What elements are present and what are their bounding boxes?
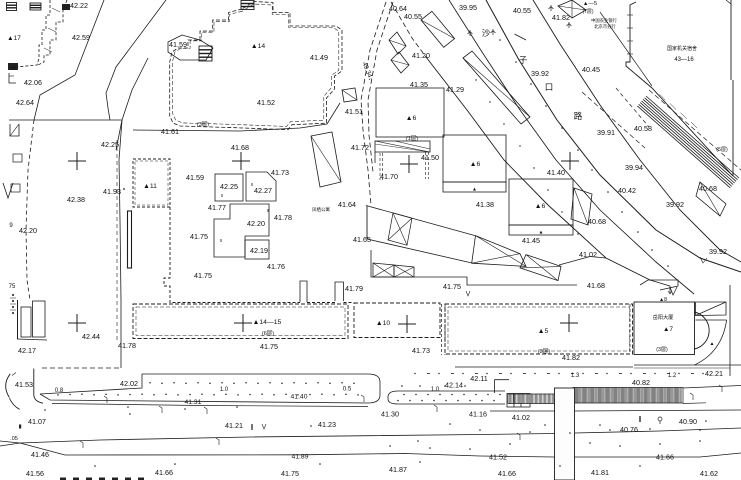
svg-text:41.50: 41.50 xyxy=(421,153,439,162)
svg-text:▲6: ▲6 xyxy=(470,161,481,168)
svg-text:▲14—15: ▲14—15 xyxy=(253,319,282,326)
svg-text:41.79: 41.79 xyxy=(345,284,363,293)
svg-text:41.75: 41.75 xyxy=(281,469,299,478)
svg-text:41.75: 41.75 xyxy=(194,271,212,280)
svg-text:41.59: 41.59 xyxy=(169,40,187,49)
svg-text:▲6: ▲6 xyxy=(535,203,546,210)
svg-text:41.68: 41.68 xyxy=(587,281,605,290)
svg-text:39.94: 39.94 xyxy=(625,163,643,172)
svg-text:▲6: ▲6 xyxy=(406,115,417,122)
svg-text:41.73: 41.73 xyxy=(271,168,289,177)
svg-text:42.17: 42.17 xyxy=(18,346,36,355)
svg-text:0.8: 0.8 xyxy=(55,388,64,394)
svg-text:0.5: 0.5 xyxy=(343,387,352,393)
svg-text:42.25: 42.25 xyxy=(220,182,238,191)
svg-text:41.72: 41.72 xyxy=(351,143,369,152)
svg-text:41.93: 41.93 xyxy=(103,187,121,196)
svg-text:▲7: ▲7 xyxy=(663,326,673,333)
svg-text:Ⅱ: Ⅱ xyxy=(220,238,222,243)
svg-text:41.75: 41.75 xyxy=(190,232,208,241)
svg-text:沙: 沙 xyxy=(482,28,491,38)
svg-text:42.44: 42.44 xyxy=(82,332,100,341)
svg-text:40.58: 40.58 xyxy=(634,124,652,133)
svg-text:41.78: 41.78 xyxy=(118,341,136,350)
svg-text:(3层): (3层) xyxy=(656,346,668,353)
svg-text:39.91: 39.91 xyxy=(597,128,615,137)
svg-text:42.14: 42.14 xyxy=(445,381,463,390)
svg-text:42.20: 42.20 xyxy=(19,226,37,235)
svg-text:41.81: 41.81 xyxy=(591,468,609,477)
svg-text:41.87: 41.87 xyxy=(389,465,407,474)
svg-text:41.40: 41.40 xyxy=(547,168,565,177)
svg-text:(3层): (3层) xyxy=(538,348,550,355)
svg-text:41.31: 41.31 xyxy=(184,399,201,406)
svg-text:41.35: 41.35 xyxy=(410,80,428,89)
svg-text:41.07: 41.07 xyxy=(28,417,46,426)
svg-text:(6层): (6层) xyxy=(262,330,274,337)
svg-text:.05: .05 xyxy=(10,436,18,442)
svg-text:路: 路 xyxy=(574,111,583,121)
svg-text:41.64: 41.64 xyxy=(338,200,356,209)
svg-text:41.73: 41.73 xyxy=(412,346,430,355)
svg-text:40.82: 40.82 xyxy=(632,378,650,387)
svg-text:41.30: 41.30 xyxy=(381,410,399,419)
svg-text:42.38: 42.38 xyxy=(67,195,85,204)
svg-text:北京市分行: 北京市分行 xyxy=(594,23,616,30)
svg-text:Ⅱ: Ⅱ xyxy=(267,208,269,213)
svg-text:42.06: 42.06 xyxy=(24,78,42,87)
svg-text:▲14: ▲14 xyxy=(251,43,266,50)
svg-text:40.68: 40.68 xyxy=(588,217,606,226)
svg-text:41.29: 41.29 xyxy=(446,85,464,94)
svg-text:41.77: 41.77 xyxy=(208,203,226,212)
svg-text:41.59: 41.59 xyxy=(186,173,204,182)
svg-text:▲11: ▲11 xyxy=(143,183,157,190)
svg-text:41.82: 41.82 xyxy=(562,353,580,362)
svg-text:41.45: 41.45 xyxy=(522,236,540,245)
svg-text:40.55: 40.55 xyxy=(513,6,531,15)
svg-text:42.19: 42.19 xyxy=(250,246,268,255)
svg-text:39.92: 39.92 xyxy=(709,247,727,256)
svg-text:Ⅱ: Ⅱ xyxy=(251,182,253,187)
svg-text:41.40: 41.40 xyxy=(290,394,307,401)
svg-text:39.92: 39.92 xyxy=(666,200,684,209)
svg-text:口: 口 xyxy=(545,82,554,92)
svg-text:40.42: 40.42 xyxy=(618,186,636,195)
svg-text:39.95: 39.95 xyxy=(459,3,477,12)
svg-text:42.25: 42.25 xyxy=(101,140,119,149)
svg-text:(3层): (3层) xyxy=(197,121,209,128)
svg-text:子: 子 xyxy=(519,55,528,65)
svg-text:41.89: 41.89 xyxy=(291,454,308,461)
svg-text:39.92: 39.92 xyxy=(531,69,549,78)
svg-text:40.45: 40.45 xyxy=(582,65,600,74)
svg-text:43—16: 43—16 xyxy=(674,57,694,63)
svg-text:41.66: 41.66 xyxy=(498,469,516,478)
svg-text:41.23: 41.23 xyxy=(318,420,336,429)
svg-text:41.66: 41.66 xyxy=(155,468,173,477)
svg-text:1.3: 1.3 xyxy=(571,373,580,379)
svg-text:(5层): (5层) xyxy=(716,146,728,153)
svg-text:41.61: 41.61 xyxy=(161,127,179,136)
svg-text:▲8: ▲8 xyxy=(659,297,667,303)
svg-text:41.49: 41.49 xyxy=(310,53,328,62)
svg-text:75: 75 xyxy=(9,284,16,290)
svg-text:41.82: 41.82 xyxy=(552,13,570,22)
svg-text:41.53: 41.53 xyxy=(15,380,33,389)
svg-text:42.27: 42.27 xyxy=(254,186,272,195)
svg-text:▲5: ▲5 xyxy=(538,328,549,335)
svg-text:42.11: 42.11 xyxy=(470,374,487,383)
svg-text:42.20: 42.20 xyxy=(247,219,265,228)
svg-text:41.78: 41.78 xyxy=(274,213,292,222)
svg-text:▲: ▲ xyxy=(539,230,544,236)
svg-text:41.66: 41.66 xyxy=(656,453,674,462)
svg-text:41.75: 41.75 xyxy=(443,282,461,291)
svg-text:42.21: 42.21 xyxy=(705,369,723,378)
svg-text:40.55: 40.55 xyxy=(404,12,422,21)
svg-text:41.16: 41.16 xyxy=(469,410,487,419)
svg-text:41.68: 41.68 xyxy=(231,143,249,152)
svg-text:41.46: 41.46 xyxy=(31,450,49,459)
svg-text:▲—5: ▲—5 xyxy=(583,1,597,7)
svg-text:41.02: 41.02 xyxy=(512,413,530,422)
svg-text:41.52: 41.52 xyxy=(257,98,275,107)
svg-text:42.02: 42.02 xyxy=(120,379,138,388)
svg-text:42.22: 42.22 xyxy=(70,1,88,10)
svg-text:41.52: 41.52 xyxy=(489,453,507,462)
svg-text:凤栖公寓: 凤栖公寓 xyxy=(312,206,330,213)
svg-text:41.76: 41.76 xyxy=(267,262,285,271)
svg-text:40.76: 40.76 xyxy=(620,425,638,434)
svg-text:41.02: 41.02 xyxy=(579,250,597,259)
svg-text:42.59: 42.59 xyxy=(72,33,90,42)
svg-text:41.20: 41.20 xyxy=(412,51,430,60)
svg-text:1.0: 1.0 xyxy=(220,387,229,393)
svg-text:1.2: 1.2 xyxy=(668,373,677,379)
svg-text:40.90: 40.90 xyxy=(679,417,697,426)
svg-text:(7层): (7层) xyxy=(582,9,593,15)
svg-text:▲: ▲ xyxy=(472,187,477,193)
svg-text:国家机关宿舍: 国家机关宿舍 xyxy=(667,45,697,52)
svg-text:41.75: 41.75 xyxy=(260,342,278,351)
svg-text:▲10: ▲10 xyxy=(376,320,391,327)
svg-text:41.51: 41.51 xyxy=(345,107,363,116)
svg-text:1.0: 1.0 xyxy=(431,387,440,393)
svg-text:41.38: 41.38 xyxy=(476,200,494,209)
svg-text:42.64: 42.64 xyxy=(16,98,34,107)
svg-text:▲: ▲ xyxy=(710,341,715,347)
svg-text:41.21: 41.21 xyxy=(225,421,243,430)
svg-text:Ⅱ: Ⅱ xyxy=(221,193,223,198)
svg-text:41.56: 41.56 xyxy=(26,469,44,478)
svg-text:岳阳大厦: 岳阳大厦 xyxy=(653,313,674,321)
svg-text:(1层): (1层) xyxy=(406,135,418,142)
svg-text:▲17: ▲17 xyxy=(7,35,21,42)
svg-text:41.62: 41.62 xyxy=(700,469,718,478)
